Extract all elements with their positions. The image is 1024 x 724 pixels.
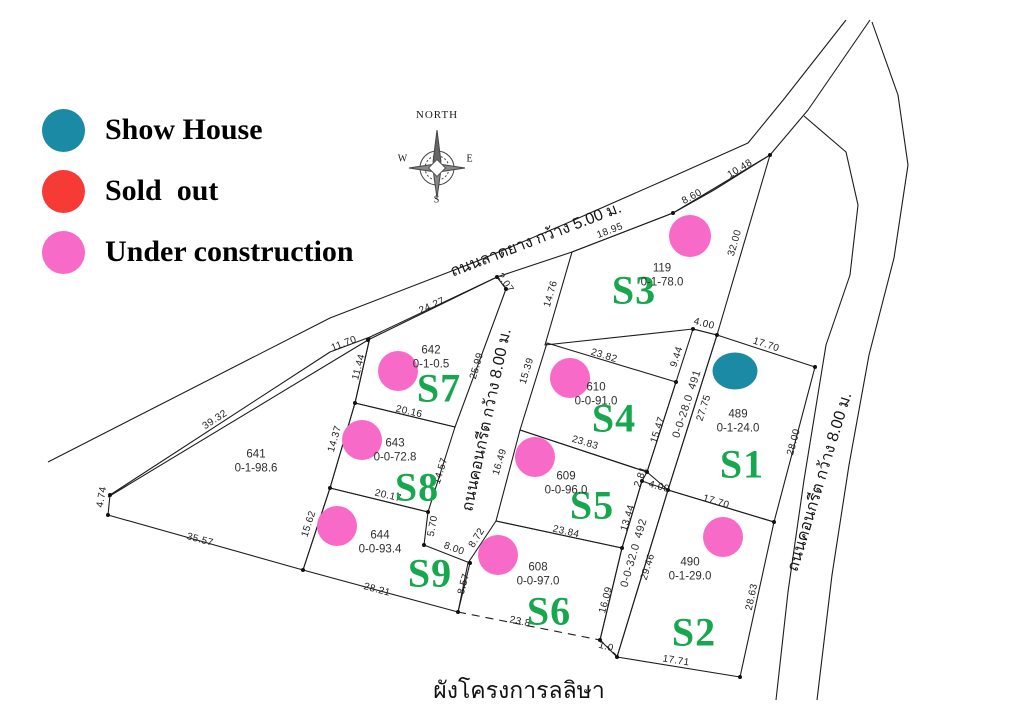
dimension-label: 11.44	[350, 353, 367, 381]
dimension-label: 16.49	[491, 447, 509, 476]
dimension-label: 29.46	[639, 552, 657, 581]
dimension-label: 8.57	[456, 572, 472, 595]
dimension-label: 39.32	[201, 408, 230, 432]
parcel-number: 643	[374, 437, 417, 451]
parcel-info-label: 6090-0-96.0	[545, 470, 588, 499]
parcel-number: 610	[575, 381, 618, 395]
parcel-area: 0-1-29.0	[669, 570, 712, 584]
parcel-info-label: 6100-0-91.0	[575, 381, 618, 410]
parcel-number: 490	[669, 556, 712, 570]
parcel-info-label: 6440-0-93.4	[359, 529, 402, 558]
dimension-label: 9.44	[669, 345, 686, 368]
parcel-info-label: 6080-0-97.0	[517, 561, 560, 590]
plot-id-label: S9	[408, 550, 452, 597]
parcel-area: 0-0-96.0	[545, 484, 588, 498]
dimension-label: 5.70	[426, 515, 440, 538]
parcel-info-label: 4900-1-29.0	[669, 556, 712, 585]
parcel-number: 609	[545, 470, 588, 484]
plot-id-label: S8	[395, 464, 439, 511]
dimension-label: 4.74	[95, 486, 109, 509]
dimension-label: 17.70	[751, 336, 780, 355]
dimension-label: 4.00	[692, 316, 715, 332]
site-plan-canvas: Show House Sold out Under construction N…	[0, 0, 1024, 724]
plot-id-label: S1	[720, 441, 764, 488]
dimension-label: 28.21	[363, 581, 392, 599]
plot-status-marker	[317, 506, 357, 546]
parcel-number: 642	[413, 344, 449, 358]
parcel-info-label: 1190-1-78.0	[641, 262, 684, 291]
dimension-label: 27.75	[695, 393, 714, 422]
parcel-area: 0-0-97.0	[517, 575, 560, 589]
dimension-label: 8.60	[680, 187, 704, 207]
parcel-area: 0-0-91.0	[575, 395, 618, 409]
dimension-label: 15.39	[518, 356, 536, 385]
dimension-label: 28.00	[785, 428, 803, 457]
dimension-label: 4.00	[647, 479, 670, 495]
plot-status-marker	[478, 535, 518, 575]
dimension-label: 23.82	[589, 347, 618, 365]
parcel-area: 0-1-0.5	[413, 358, 449, 372]
parcel-info-label: 6410-1-98.6	[235, 448, 278, 477]
plot-status-marker	[713, 353, 758, 390]
dimension-label: 35.57	[186, 531, 215, 549]
parcel-info-label: 6420-1-0.5	[413, 344, 449, 373]
plot-status-marker	[669, 215, 711, 257]
dimension-label: 16.09	[597, 586, 615, 615]
dimension-label: 24.27	[417, 295, 446, 316]
dimension-label: 15.62	[300, 509, 319, 538]
parcel-info-label: 6430-0-72.8	[374, 437, 417, 466]
map-label-overlay: 18.958.6010.4832.0024.272.0714.764.009.4…	[0, 0, 1024, 724]
parcel-area: 0-1-78.0	[641, 276, 684, 290]
plot-id-label: S2	[672, 609, 716, 656]
plot-id-label: S6	[527, 588, 571, 635]
dimension-label: 2.07	[494, 271, 515, 295]
dimension-label: 15.47	[649, 415, 668, 444]
dimension-label: 1.0	[597, 640, 614, 655]
dimension-label: 2.81	[632, 465, 650, 489]
dimension-label: 17.70	[701, 493, 730, 511]
dimension-label: 14.76	[542, 279, 560, 308]
dimension-label: 11.70	[330, 334, 358, 354]
parcel-number: 119	[641, 262, 684, 276]
plot-status-marker	[703, 517, 743, 557]
parcel-area: 0-0-93.4	[359, 543, 402, 557]
parcel-number: 641	[235, 448, 278, 462]
dimension-label: 28.63	[744, 583, 760, 612]
parcel-area: 0-1-24.0	[717, 422, 760, 436]
dimension-label: 17.71	[662, 653, 690, 668]
parcel-area: 0-1-98.6	[235, 462, 278, 476]
dimension-label: 32.00	[726, 228, 744, 257]
parcel-number: 608	[517, 561, 560, 575]
parcel-area: 0-0-72.8	[374, 451, 417, 465]
dimension-label: 10.48	[726, 157, 755, 180]
parcel-info-label: 4890-1-24.0	[717, 408, 760, 437]
parcel-number: 489	[717, 408, 760, 422]
parcel-number: 644	[359, 529, 402, 543]
road-name-label: ถนนคอนกรีต กว้าง 8.00 ม.	[455, 326, 518, 514]
road-name-label: ถนนคอนกรีต กว้าง 8.00 ม.	[781, 389, 859, 575]
project-plan-title: ผังโครงการลลิษา	[433, 673, 605, 709]
